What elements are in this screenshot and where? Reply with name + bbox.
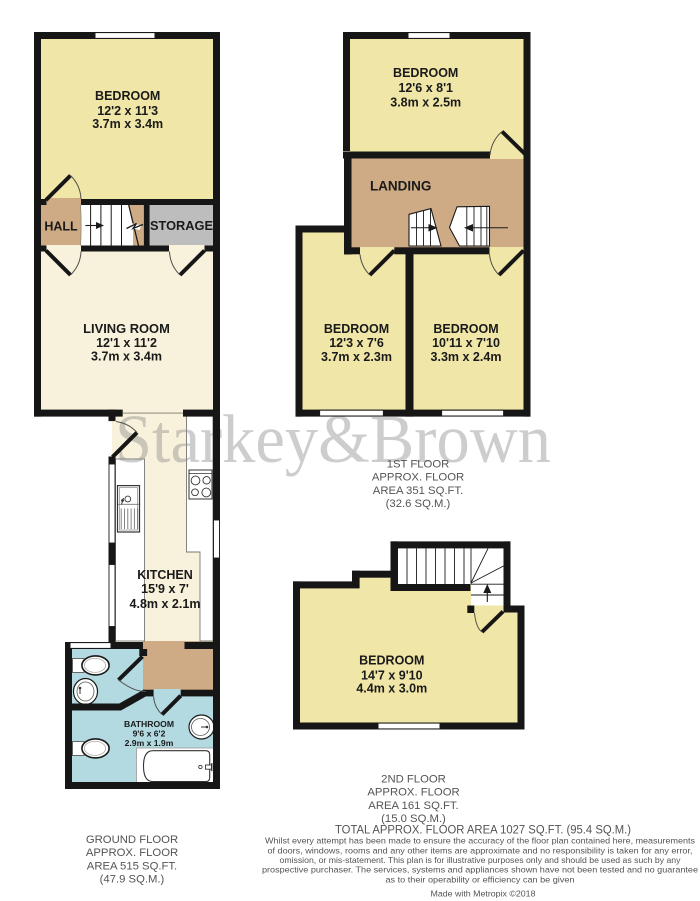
svg-text:12'6 x 8'1: 12'6 x 8'1 (398, 81, 453, 95)
svg-text:1ST FLOOR: 1ST FLOOR (387, 459, 450, 471)
svg-text:(47.9 SQ.M.): (47.9 SQ.M.) (100, 874, 165, 886)
svg-text:AREA 161 SQ.FT.: AREA 161 SQ.FT. (368, 800, 458, 812)
svg-text:APPROX. FLOOR: APPROX. FLOOR (86, 847, 178, 859)
svg-text:(32.6 SQ.M.): (32.6 SQ.M.) (386, 498, 451, 510)
svg-text:9'6 x 6'2: 9'6 x 6'2 (133, 728, 166, 738)
svg-text:12'3 x 7'6: 12'3 x 7'6 (329, 336, 384, 350)
svg-text:LIVING ROOM: LIVING ROOM (83, 321, 170, 336)
svg-text:3.7m x 3.4m: 3.7m x 3.4m (91, 350, 162, 364)
svg-text:3.7m x 2.3m: 3.7m x 2.3m (321, 350, 392, 364)
svg-text:12'2 x 11'3: 12'2 x 11'3 (97, 104, 158, 118)
svg-text:AREA 351 SQ.FT.: AREA 351 SQ.FT. (373, 485, 463, 497)
svg-text:AREA 515 SQ.FT.: AREA 515 SQ.FT. (87, 860, 177, 872)
svg-text:BEDROOM: BEDROOM (393, 66, 458, 80)
svg-text:BEDROOM: BEDROOM (95, 89, 160, 103)
svg-text:prospective purchaser. The ser: prospective purchaser. The services, sys… (262, 865, 698, 875)
svg-text:LANDING: LANDING (370, 179, 432, 194)
svg-text:APPROX. FLOOR: APPROX. FLOOR (367, 787, 459, 799)
svg-text:as to their operability or eff: as to their operability or efficiency ca… (386, 874, 575, 884)
svg-text:APPROX. FLOOR: APPROX. FLOOR (372, 472, 464, 484)
svg-text:2ND FLOOR: 2ND FLOOR (381, 774, 446, 786)
svg-text:of doors, windows, rooms and a: of doors, windows, rooms and any other i… (268, 845, 693, 855)
svg-text:3.8m x 2.5m: 3.8m x 2.5m (390, 96, 461, 110)
svg-text:BATHROOM: BATHROOM (124, 719, 174, 729)
svg-text:KITCHEN: KITCHEN (137, 568, 193, 582)
svg-text:HALL: HALL (44, 220, 78, 234)
svg-text:BEDROOM: BEDROOM (324, 322, 389, 336)
svg-text:4.4m x 3.0m: 4.4m x 3.0m (356, 681, 427, 695)
svg-text:GROUND FLOOR: GROUND FLOOR (86, 834, 178, 846)
svg-text:STORAGE: STORAGE (150, 218, 214, 233)
svg-text:3.3m x 2.4m: 3.3m x 2.4m (431, 350, 502, 364)
svg-text:15'9 x 7': 15'9 x 7' (141, 582, 189, 596)
svg-text:2.9m x 1.9m: 2.9m x 1.9m (125, 738, 174, 748)
svg-text:3.7m x 3.4m: 3.7m x 3.4m (92, 117, 163, 131)
svg-text:BEDROOM: BEDROOM (433, 322, 498, 336)
svg-text:TOTAL APPROX. FLOOR AREA 1027: TOTAL APPROX. FLOOR AREA 1027 SQ.FT. (95… (335, 823, 631, 837)
svg-text:BEDROOM: BEDROOM (359, 654, 424, 668)
svg-text:12'1 x 11'2: 12'1 x 11'2 (96, 336, 157, 350)
svg-text:Whilst every attempt has been: Whilst every attempt has been made to en… (265, 836, 696, 846)
svg-text:4.8m x 2.1m: 4.8m x 2.1m (130, 597, 201, 611)
svg-text:omission, or mis-statement. Th: omission, or mis-statement. This plan is… (280, 855, 682, 865)
svg-text:Made with Metropix ©2018: Made with Metropix ©2018 (431, 889, 536, 899)
svg-text:14'7 x 9'10: 14'7 x 9'10 (361, 668, 423, 682)
svg-text:10'11 x 7'10: 10'11 x 7'10 (432, 336, 500, 350)
